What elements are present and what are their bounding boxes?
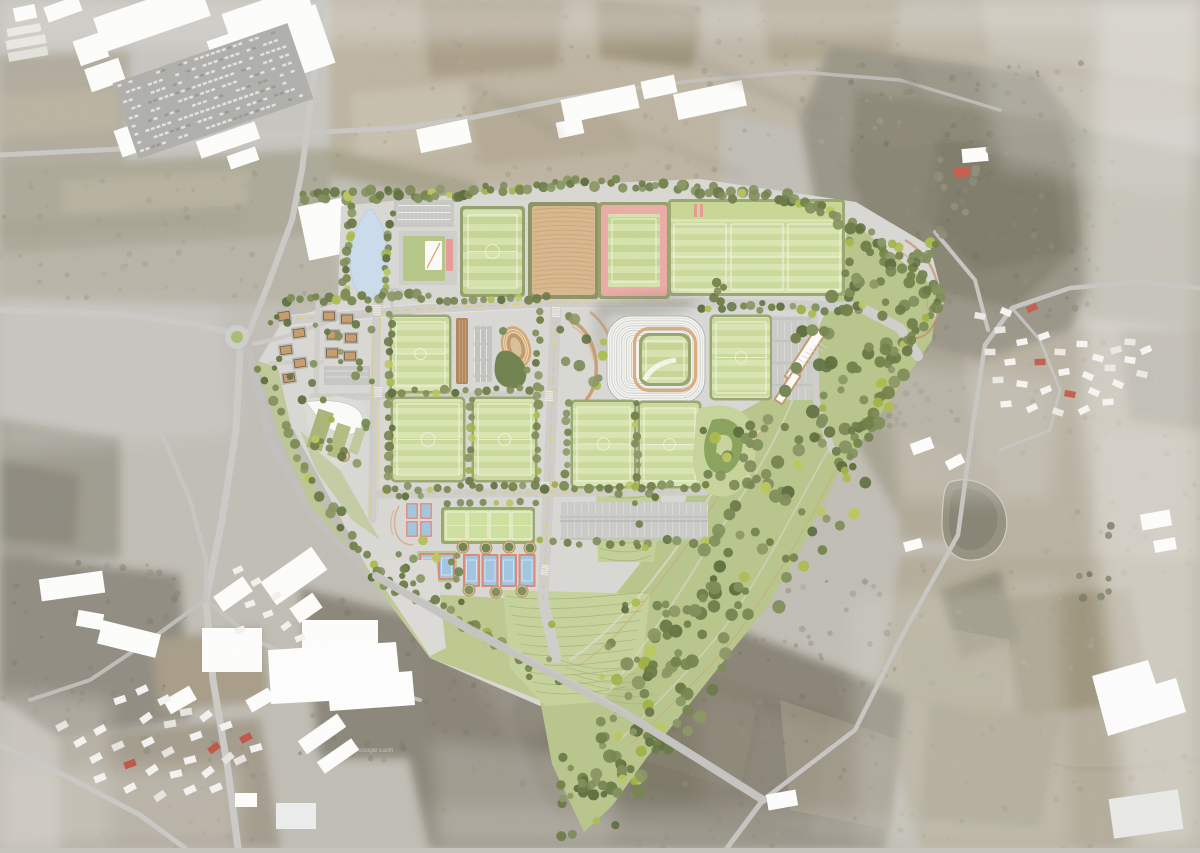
svg-text:Google Earth: Google Earth [358, 748, 393, 754]
